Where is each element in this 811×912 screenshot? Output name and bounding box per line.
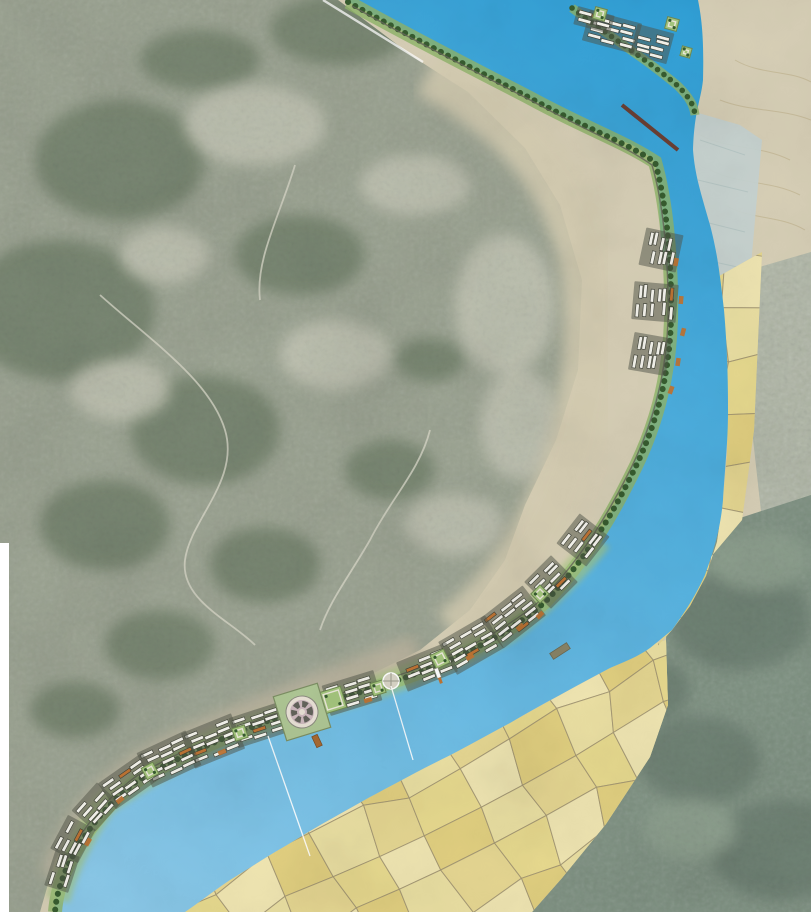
aerial-grain-overlay bbox=[0, 0, 811, 912]
map-canvas bbox=[0, 0, 811, 912]
map-margin bbox=[0, 543, 9, 912]
masterplan-map bbox=[0, 0, 811, 912]
